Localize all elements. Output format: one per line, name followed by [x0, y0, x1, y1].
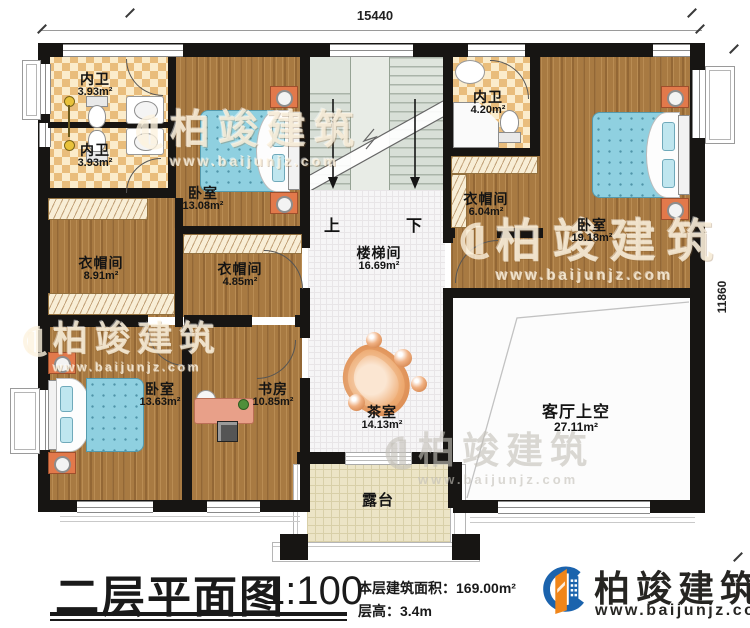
room-area: 13.63m² — [122, 397, 198, 409]
watermark-logo-icon — [128, 110, 164, 156]
wardrobe-icon — [48, 293, 175, 315]
sink-icon — [455, 60, 485, 84]
bay-window — [22, 60, 41, 120]
watermark: 柏竣建筑 www.baijunjz.com — [128, 110, 362, 168]
toilet-icon — [498, 132, 521, 143]
dimension-top-label: 15440 — [340, 8, 410, 23]
room-name: 衣帽间 — [63, 256, 139, 271]
room-name: 衣帽间 — [448, 192, 524, 207]
room-label-bedroom3: 卧室 13.63m² — [122, 382, 198, 409]
room-label-tearoom: 茶室 14.13m² — [344, 405, 420, 432]
watermark-logo-icon — [378, 432, 412, 476]
room-label-bath3: 内卫 4.20m² — [456, 90, 520, 117]
room-area: 6.04m² — [448, 207, 524, 219]
watermark-url: www.baijunjz.com — [53, 361, 222, 373]
room-label-study: 书房 10.85m² — [235, 382, 311, 409]
window — [498, 501, 650, 514]
floor-area-label: 本层建筑面积：169.00m² — [358, 578, 516, 598]
stray-tick — [729, 44, 739, 54]
room-name: 书房 — [235, 382, 311, 397]
room-area: 3.93m² — [63, 158, 127, 170]
window — [653, 44, 695, 57]
window — [692, 70, 706, 138]
floor-plan-canvas: 15440 11860 — [0, 0, 750, 628]
room-name: 客厅上空 — [516, 404, 636, 421]
bed-pillow — [662, 159, 675, 188]
bay-window — [705, 66, 735, 144]
nightstand-icon — [270, 86, 298, 108]
room-name: 茶室 — [344, 405, 420, 420]
brand-url: www.baijunjz.com — [595, 602, 750, 620]
wall — [530, 57, 540, 156]
room-area: 19.18m² — [556, 233, 628, 245]
window — [207, 501, 260, 513]
watermark-logo-icon — [452, 218, 490, 266]
window — [77, 501, 153, 513]
window-sill — [60, 516, 300, 522]
window — [63, 44, 183, 57]
bed-pillow — [60, 386, 73, 412]
bed-headboard — [678, 115, 690, 195]
room-label-closet3: 衣帽间 6.04m² — [448, 192, 524, 219]
room-area: 27.11m² — [516, 421, 636, 434]
room-label-bath2: 内卫 3.93m² — [63, 143, 127, 170]
room-area: 8.91m² — [63, 271, 139, 283]
watermark-url: www.baijunjz.com — [496, 268, 724, 283]
room-label-bedroom2: 卧室 19.18m² — [556, 218, 628, 245]
room-area: 13.08m² — [165, 201, 241, 213]
room-area: 4.85m² — [202, 277, 278, 289]
room-name: 楼梯间 — [337, 246, 421, 261]
scale-label: 1:100 — [263, 569, 363, 614]
drain-pipe-line — [68, 105, 70, 137]
room-label-terrace: 露台 — [348, 493, 408, 509]
watermark-name: 柏竣建筑 — [53, 322, 222, 357]
bed-icon — [592, 112, 688, 196]
watermark-name: 柏竣建筑 — [170, 110, 362, 150]
room-name: 内卫 — [63, 72, 127, 87]
room-area: 14.13m² — [344, 420, 420, 432]
tea-stool-icon — [366, 332, 382, 348]
dimension-tick — [37, 24, 47, 34]
room-label-closet1: 衣帽间 8.91m² — [63, 256, 139, 283]
room-name: 卧室 — [556, 218, 628, 233]
wall — [183, 226, 307, 234]
bed-pillow — [60, 417, 73, 443]
room-name: 内卫 — [63, 143, 127, 158]
watermark-name: 柏竣建筑 — [418, 432, 594, 469]
room-label-closet2: 衣帽间 4.85m² — [202, 262, 278, 289]
room-area: 4.20m² — [456, 105, 520, 117]
window — [468, 44, 525, 57]
room-area: 3.93m² — [63, 87, 127, 99]
wall — [443, 148, 540, 156]
bay-window — [10, 388, 40, 454]
window-sill — [470, 517, 695, 523]
room-area: 10.85m² — [235, 397, 311, 409]
stairs-up-label: 上 — [320, 212, 344, 236]
monitor-icon — [217, 421, 238, 442]
nightstand-icon — [48, 452, 76, 474]
room-name: 露台 — [348, 493, 408, 509]
room-name: 卧室 — [122, 382, 198, 397]
wardrobe-icon — [183, 234, 302, 254]
room-label-stairwell: 楼梯间 16.69m² — [337, 246, 421, 273]
nightstand-icon — [661, 86, 689, 108]
watermark-logo-icon — [16, 322, 48, 362]
watermark-url: www.baijunjz.com — [170, 154, 362, 168]
room-label-bath1: 内卫 3.93m² — [63, 72, 127, 99]
wall — [175, 198, 183, 327]
floor-height-label: 层高：3.4m — [358, 601, 432, 621]
room-name: 卧室 — [165, 186, 241, 201]
dimension-tick — [695, 24, 705, 34]
wall — [443, 288, 705, 298]
room-name: 内卫 — [456, 90, 520, 105]
title-underline — [50, 619, 347, 621]
room-area: 16.69m² — [337, 261, 421, 273]
brand-logo: 柏竣建筑 www.baijunjz.com — [538, 558, 748, 620]
watermark-url: www.baijunjz.com — [418, 473, 594, 486]
wall — [300, 288, 310, 338]
room-label-void: 客厅上空 27.11m² — [516, 404, 636, 434]
toilet-icon — [88, 105, 106, 128]
terrace-pier — [280, 534, 308, 560]
stray-tick — [687, 8, 697, 18]
brand-logo-icon — [538, 560, 588, 620]
room-name: 衣帽间 — [202, 262, 278, 277]
dimension-top-line — [40, 30, 702, 31]
watermark: 柏竣建筑 www.baijunjz.com — [378, 432, 594, 486]
window — [330, 44, 413, 57]
room-label-bedroom1: 卧室 13.08m² — [165, 186, 241, 213]
terrace-pier — [452, 534, 480, 560]
tea-stool-icon — [411, 376, 427, 392]
wardrobe-icon — [48, 198, 148, 220]
wardrobe-icon — [451, 156, 538, 174]
nightstand-icon — [270, 192, 298, 214]
tea-stool-icon — [394, 349, 412, 367]
stray-tick — [125, 8, 135, 18]
stairs-down-label: 下 — [402, 212, 426, 236]
watermark: 柏竣建筑 www.baijunjz.com — [16, 322, 222, 373]
bed-pillow — [662, 122, 675, 151]
